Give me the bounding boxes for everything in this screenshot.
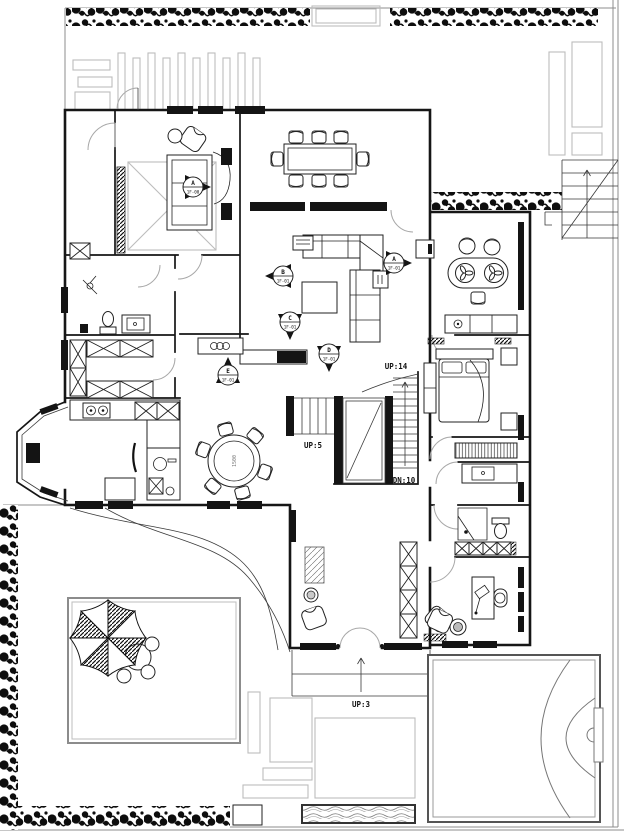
svg-text:D: D: [327, 347, 331, 354]
console-table: [198, 338, 243, 354]
nightstand: [221, 148, 232, 165]
coffee-table: [302, 282, 337, 313]
hedge-top-left: [66, 8, 310, 26]
sofa-corner: [360, 235, 383, 272]
stair-arrow-up: [584, 170, 591, 238]
label-up14: UP:14: [385, 362, 408, 371]
closet-room: [70, 340, 153, 398]
bay-window: [17, 402, 68, 505]
kitchen: [17, 400, 180, 505]
garden-stool: [117, 669, 131, 683]
svg-text:1F-01: 1F-01: [284, 325, 297, 330]
floor-drain: [80, 324, 88, 333]
shower-head: [83, 276, 97, 294]
bay-appliance: [26, 443, 40, 463]
hedge-courtyard: [430, 192, 562, 210]
sofa-side-table: [293, 236, 313, 250]
wardrobe-hangers: [455, 443, 517, 458]
wardrobe-hall: [455, 443, 517, 483]
hallway: [198, 338, 243, 354]
elevation-marker-E: E 1F-01: [216, 357, 240, 385]
bed: [439, 359, 489, 422]
nightstand: [501, 348, 517, 365]
sink-vanity: [122, 315, 150, 333]
garden-stool: [145, 637, 159, 651]
elevation-marker-D: D 1F-01: [317, 344, 341, 372]
garden-stool: [141, 665, 155, 679]
water-feature: [302, 805, 415, 823]
rug: [305, 547, 324, 583]
courtyard-planters: [549, 42, 602, 155]
island: [105, 478, 135, 500]
stove: [83, 403, 110, 418]
garden-pavers: [243, 692, 415, 798]
nightstand: [501, 413, 517, 430]
svg-text:E: E: [226, 368, 230, 375]
tea-console: [445, 315, 517, 333]
floor-plan-drawing: UP:14 UP:5 DN:10 1: [0, 0, 624, 831]
dining-table: [284, 144, 356, 174]
tea-room: [445, 238, 517, 333]
fridge: [147, 420, 180, 448]
bathroom-right: [455, 508, 516, 555]
office-chair: [494, 589, 507, 607]
armchair: [300, 605, 328, 631]
hedge-bottom: [0, 806, 230, 828]
towel-rail: [133, 443, 136, 472]
dining-room: [271, 131, 369, 187]
porch-arrow: [358, 658, 365, 692]
svg-text:C: C: [288, 315, 292, 322]
label-up5: UP:5: [304, 441, 322, 450]
double-door: [340, 628, 380, 648]
sofa-side-table: [373, 271, 388, 288]
living-room: [240, 235, 434, 364]
staircase: UP:14 UP:5 DN:10: [286, 362, 418, 485]
basketball-court: [428, 655, 603, 822]
shower: [458, 508, 487, 540]
armchair: [178, 124, 207, 153]
svg-text:1F-01: 1F-01: [277, 279, 290, 284]
elevation-marker-C: C 1F-01: [278, 312, 302, 340]
label-dn10: DN:10: [393, 476, 416, 485]
garden: [68, 508, 290, 743]
table-diameter-label: 1500: [232, 455, 238, 467]
porch: UP:3: [243, 650, 430, 798]
door-mat: [424, 634, 446, 641]
nightstand: [221, 203, 232, 220]
cabinet: [70, 243, 90, 259]
bottom-features: [233, 805, 415, 825]
svg-text:B: B: [281, 269, 285, 276]
stair-direction-arrow: [402, 382, 408, 466]
svg-text:1F-01: 1F-01: [388, 266, 401, 271]
label-up3: UP:3: [352, 700, 371, 709]
svg-text:1F-00: 1F-00: [187, 190, 200, 195]
parasol: [70, 600, 146, 676]
utility-box: [233, 805, 262, 825]
toilet: [492, 518, 509, 539]
wardrobe: [117, 167, 125, 253]
side-table: [168, 129, 182, 143]
driveway-slats: [73, 53, 260, 110]
svg-text:A: A: [392, 256, 396, 263]
elevation-marker-A-living: A 1F-01: [384, 251, 412, 275]
hedge-top-right: [390, 8, 598, 26]
backboard: [594, 708, 603, 762]
bathroom-left: [80, 276, 150, 334]
bedroom-1: [70, 124, 232, 259]
floor-plan-page: UP:14 UP:5 DN:10 1: [0, 0, 624, 831]
elevation-marker-B: B 1F-01: [265, 264, 293, 288]
breakfast-table: 1500: [195, 421, 273, 500]
svg-text:1F-01: 1F-01: [222, 378, 235, 383]
svg-text:1F-01: 1F-01: [323, 357, 336, 362]
headboard: [436, 349, 493, 359]
bedroom-2: [424, 338, 517, 430]
hedge-left: [0, 505, 18, 830]
toilet: [100, 312, 116, 335]
svg-text:A: A: [191, 180, 195, 187]
